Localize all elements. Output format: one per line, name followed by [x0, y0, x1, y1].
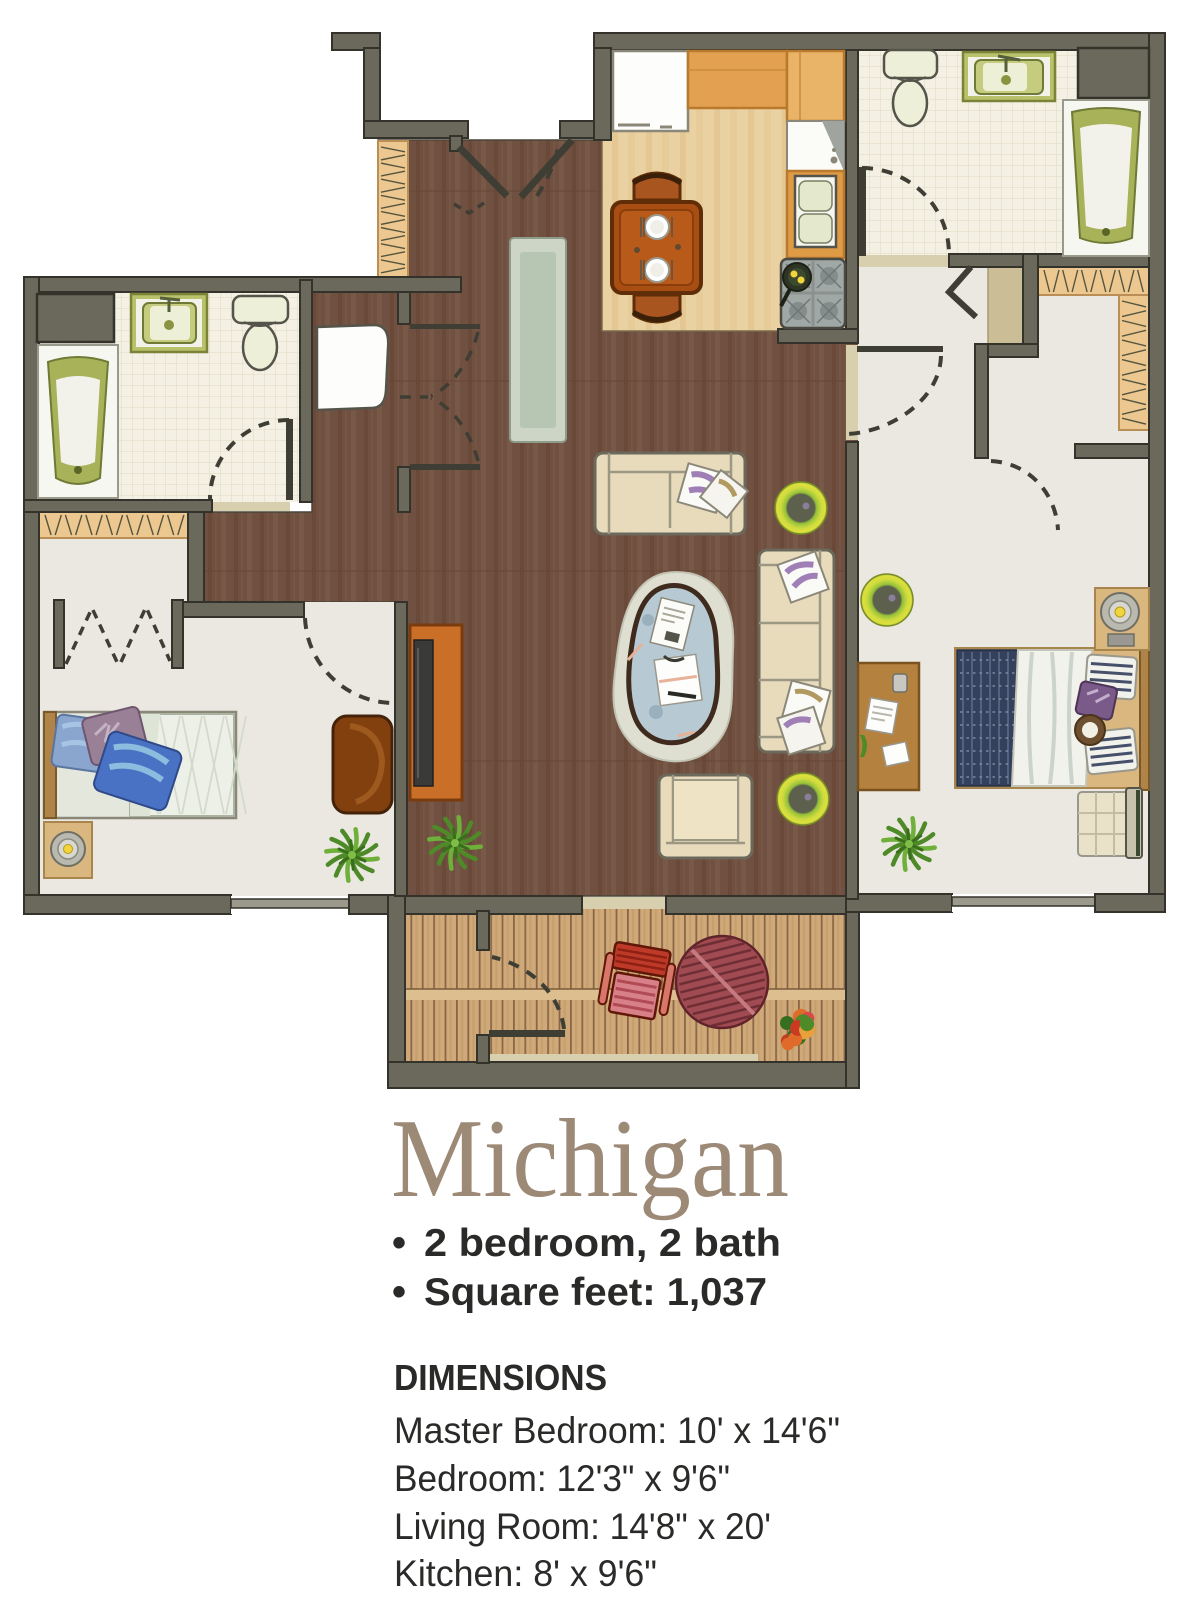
svg-text:Master Bedroom: 10' x 14'6": Master Bedroom: 10' x 14'6"	[394, 1410, 840, 1451]
svg-text:Kitchen: 8' x 9'6": Kitchen: 8' x 9'6"	[394, 1553, 657, 1594]
svg-text:Square feet: 1,037: Square feet: 1,037	[424, 1271, 767, 1314]
svg-text:•: •	[392, 1221, 406, 1265]
svg-text:DIMENSIONS: DIMENSIONS	[394, 1357, 607, 1398]
svg-text:2 bedroom, 2 bath: 2 bedroom, 2 bath	[424, 1222, 781, 1265]
svg-text:Bedroom: 12'3" x 9'6": Bedroom: 12'3" x 9'6"	[394, 1458, 730, 1499]
svg-text:Michigan: Michigan	[391, 1097, 789, 1221]
svg-text:•: •	[392, 1270, 406, 1314]
svg-text:Living Room: 14'8" x 20': Living Room: 14'8" x 20'	[394, 1506, 771, 1547]
